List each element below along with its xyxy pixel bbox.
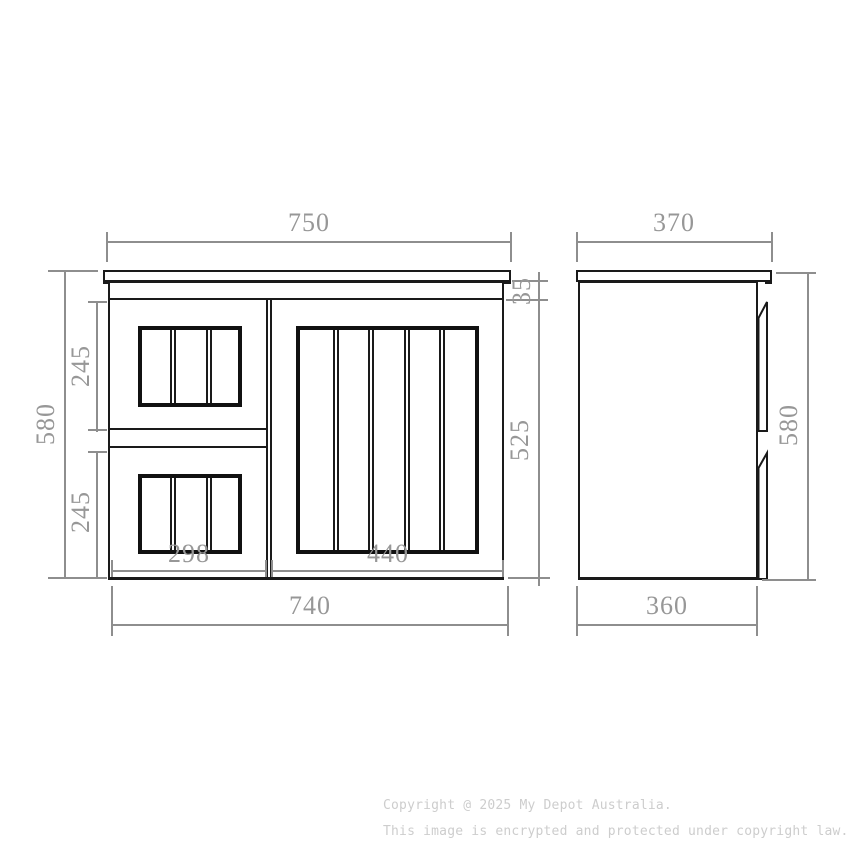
dim-label-drawer2-height: 245 bbox=[67, 452, 95, 572]
door-panel bbox=[296, 326, 479, 554]
watermark-line-1: Copyright @ 2025 My Depot Australia. bbox=[383, 798, 672, 813]
dim-tick bbox=[48, 577, 107, 579]
dim-tick bbox=[776, 272, 816, 274]
dim-line-360 bbox=[577, 624, 757, 626]
dim-tick bbox=[111, 586, 113, 636]
dim-tick bbox=[576, 586, 578, 636]
drawer-door-divider-line-1 bbox=[266, 300, 268, 577]
drawer-gap-line-lower bbox=[110, 446, 266, 448]
dim-tick bbox=[48, 270, 98, 272]
side-cabinet-body bbox=[578, 281, 758, 580]
front-top-reveal-line bbox=[110, 298, 502, 300]
door-slat-line bbox=[333, 330, 335, 550]
dim-label-side-height: 580 bbox=[775, 365, 803, 485]
dim-line-245-bottom bbox=[96, 452, 98, 578]
drawer1-slat-line bbox=[206, 330, 208, 403]
dim-label-drawer-width: 298 bbox=[129, 540, 249, 568]
door-slat-line bbox=[408, 330, 410, 550]
drawer1-slat-line bbox=[174, 330, 176, 403]
edge-profile-lower bbox=[759, 453, 768, 579]
dim-label-front-body-width: 740 bbox=[250, 592, 370, 620]
dim-tick bbox=[265, 560, 267, 577]
dim-line-245-top bbox=[96, 302, 98, 432]
dim-tick bbox=[502, 560, 504, 577]
dim-label-side-body-depth: 360 bbox=[607, 592, 727, 620]
edge-profile-upper bbox=[759, 302, 768, 431]
dim-label-front-total-height: 580 bbox=[32, 364, 60, 484]
door-slat-line bbox=[404, 330, 406, 550]
dim-label-side-top-depth: 370 bbox=[614, 209, 734, 237]
dim-tick bbox=[507, 586, 509, 636]
side-countertop-lip-right bbox=[765, 280, 772, 284]
dim-tick bbox=[756, 586, 758, 636]
front-edge-profile bbox=[754, 296, 772, 584]
door-slat-line bbox=[337, 330, 339, 550]
dim-tick bbox=[88, 429, 107, 431]
dim-tick bbox=[771, 232, 773, 262]
dim-tick bbox=[271, 560, 273, 577]
door-slat-line bbox=[368, 330, 370, 550]
dim-tick bbox=[88, 301, 107, 303]
dim-label-front-height: 525 bbox=[506, 380, 534, 500]
dim-tick bbox=[576, 232, 578, 262]
dim-tick bbox=[508, 577, 550, 579]
drawer-gap-line-upper bbox=[110, 428, 266, 430]
dim-line-370 bbox=[577, 241, 772, 243]
dim-tick bbox=[111, 560, 113, 577]
dim-line-298 bbox=[112, 570, 266, 572]
drawer1-panel bbox=[138, 326, 242, 407]
door-slat-line bbox=[372, 330, 374, 550]
dim-line-35-525 bbox=[538, 272, 540, 586]
dim-line-750 bbox=[107, 241, 511, 243]
dim-tick bbox=[106, 232, 108, 262]
dim-label-door-width: 440 bbox=[328, 540, 448, 568]
door-slat-line bbox=[439, 330, 441, 550]
dimension-drawing: 750 740 298 440 580 245 245 35 525 370 3… bbox=[0, 0, 850, 850]
watermark-line-2: This image is encrypted and protected un… bbox=[383, 824, 849, 839]
dim-label-drawer1-height: 245 bbox=[67, 306, 95, 426]
dim-line-740 bbox=[112, 624, 508, 626]
dim-label-counter-thickness: 35 bbox=[508, 231, 536, 351]
dim-line-440 bbox=[272, 570, 503, 572]
dim-tick bbox=[762, 579, 816, 581]
drawer1-slat-line bbox=[170, 330, 172, 403]
drawer-door-divider-line-2 bbox=[270, 300, 272, 577]
drawer1-slat-line bbox=[210, 330, 212, 403]
door-slat-line bbox=[443, 330, 445, 550]
dim-label-front-top-width: 750 bbox=[249, 209, 369, 237]
dim-line-580-right bbox=[807, 273, 809, 580]
